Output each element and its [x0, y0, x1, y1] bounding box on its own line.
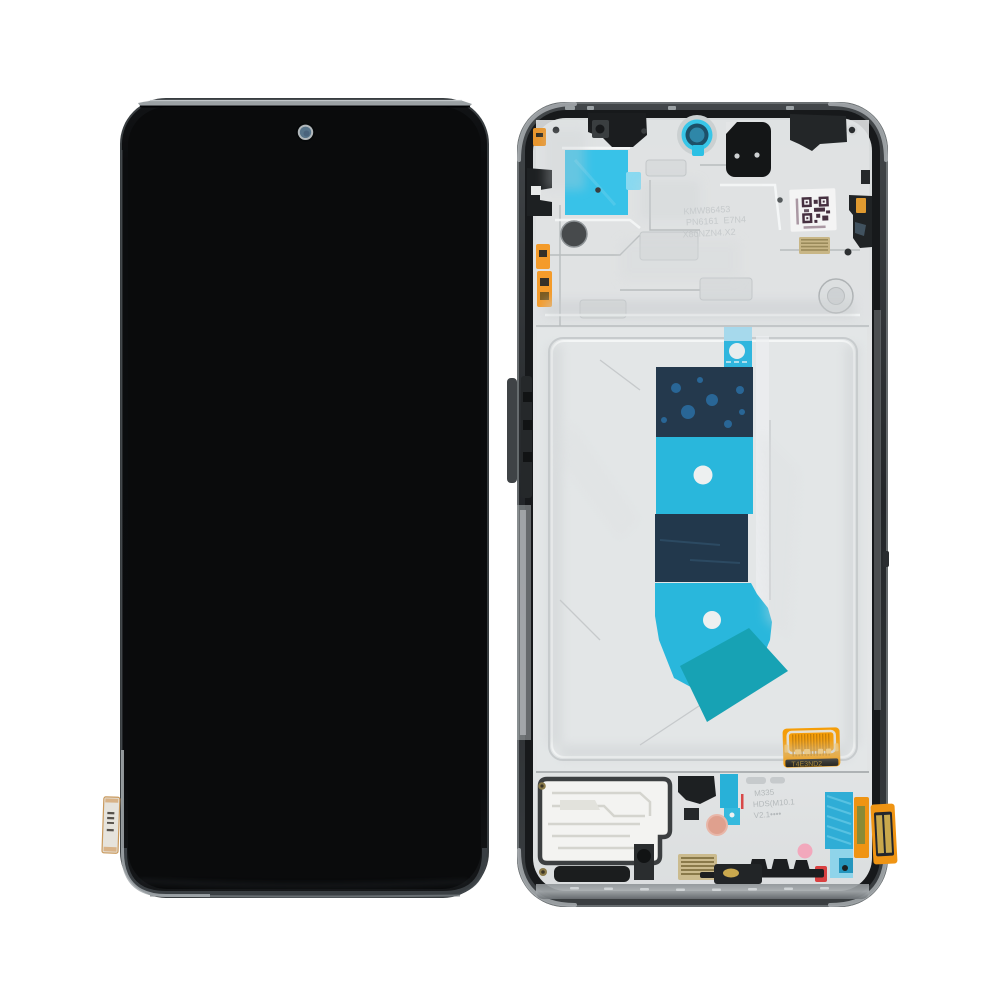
svg-text:M335: M335: [754, 788, 775, 798]
svg-text:T4E3ND2: T4E3ND2: [791, 761, 822, 769]
